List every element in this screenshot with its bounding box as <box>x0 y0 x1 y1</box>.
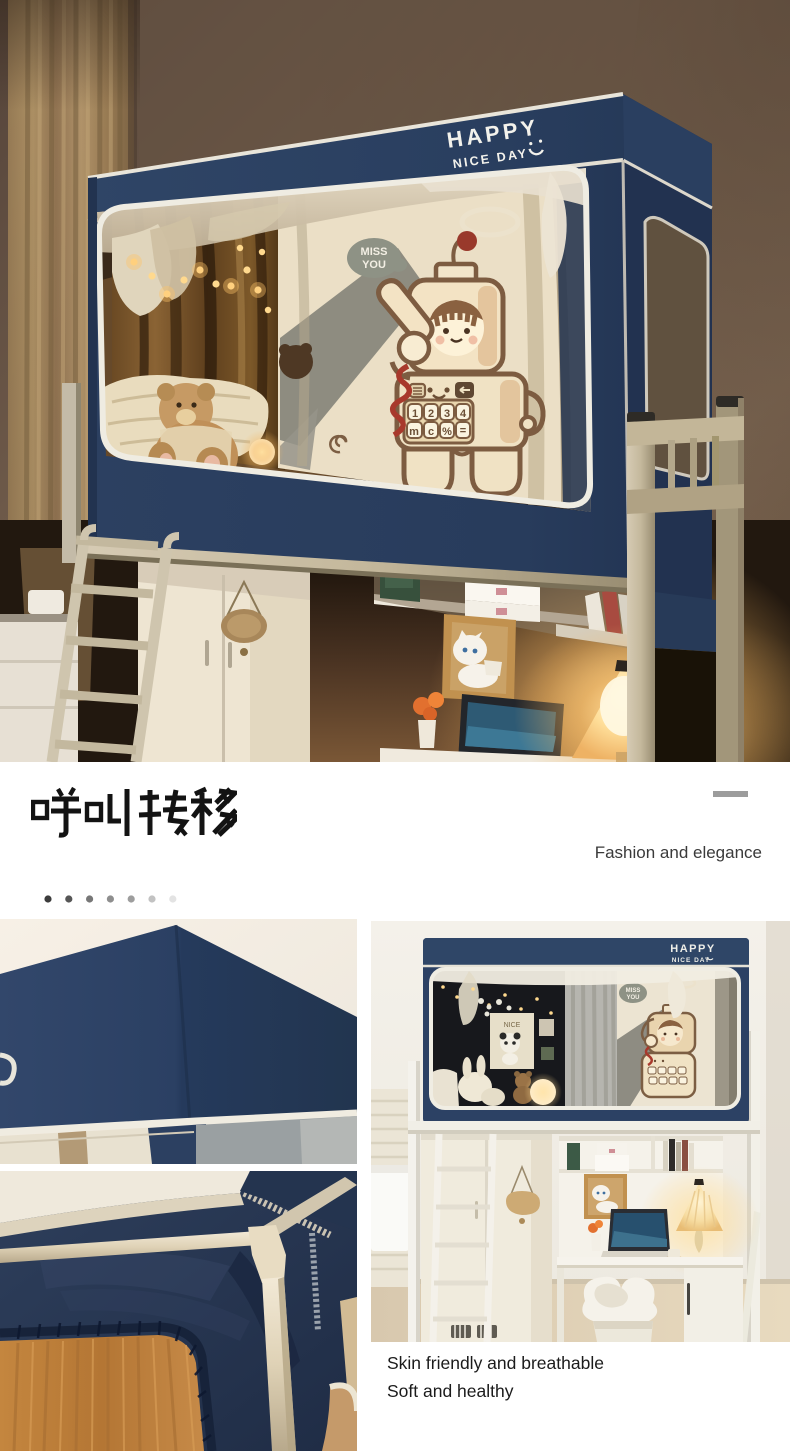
svg-text:4: 4 <box>460 408 467 420</box>
svg-text:HAPPY: HAPPY <box>670 943 715 955</box>
svg-text:2: 2 <box>428 408 434 420</box>
svg-text:1: 1 <box>412 408 418 420</box>
svg-text:=: = <box>460 425 466 437</box>
svg-text:%: % <box>442 426 452 438</box>
svg-text:c: c <box>428 426 434 438</box>
svg-text:m: m <box>409 426 419 438</box>
svg-text:YOU: YOU <box>626 995 639 1001</box>
svg-text:YOU: YOU <box>362 259 386 271</box>
svg-text:NICE: NICE <box>504 1022 521 1029</box>
svg-text:MISS: MISS <box>361 246 388 258</box>
svg-text:NICE DAY: NICE DAY <box>672 957 710 964</box>
svg-text:3: 3 <box>444 408 450 420</box>
svg-text:MISS: MISS <box>626 988 641 994</box>
